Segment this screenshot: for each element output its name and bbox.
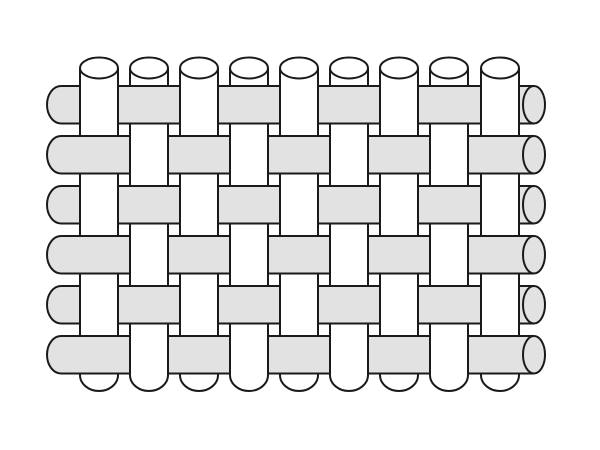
weft-end-cap	[523, 236, 545, 274]
crossing-patch	[130, 334, 168, 376]
crossing-patch	[280, 284, 318, 326]
crossing-patch	[330, 334, 368, 376]
crossing-patch	[80, 184, 118, 226]
fabric-weave-diagram	[0, 0, 600, 450]
crossing-patch	[180, 284, 218, 326]
warp-top-cap	[481, 58, 519, 79]
crossing-patch	[80, 284, 118, 326]
crossing-patch	[180, 84, 218, 126]
weft-end-cap	[523, 86, 545, 124]
weft-end-cap	[523, 136, 545, 174]
crossing-patch	[481, 284, 519, 326]
crossing-patch	[330, 234, 368, 276]
warp-top-cap	[430, 58, 468, 79]
warp-top-cap	[130, 58, 168, 79]
crossing-patch	[130, 134, 168, 176]
crossing-patch	[481, 184, 519, 226]
warp-top-cap	[230, 58, 268, 79]
crossing-patch	[280, 184, 318, 226]
warp-top-cap	[180, 58, 218, 79]
warp-top-cap	[380, 58, 418, 79]
crossing-patch	[280, 84, 318, 126]
crossing-patch	[180, 184, 218, 226]
crossing-patch	[80, 84, 118, 126]
weft-end-cap	[523, 336, 545, 374]
crossing-patch	[130, 234, 168, 276]
crossing-patch	[380, 284, 418, 326]
weave-svg	[0, 0, 600, 450]
crossing-patch	[230, 134, 268, 176]
warp-top-cap	[280, 58, 318, 79]
crossing-patch	[430, 134, 468, 176]
crossing-patch	[330, 134, 368, 176]
weft-end-cap	[523, 186, 545, 224]
crossing-patch	[230, 234, 268, 276]
crossing-patch	[380, 84, 418, 126]
weft-end-cap	[523, 286, 545, 324]
crossing-patch	[430, 334, 468, 376]
crossing-patch	[230, 334, 268, 376]
warp-top-cap	[330, 58, 368, 79]
crossing-patch	[481, 84, 519, 126]
crossing-patch	[380, 184, 418, 226]
warp-top-cap	[80, 58, 118, 79]
crossing-patch	[430, 234, 468, 276]
